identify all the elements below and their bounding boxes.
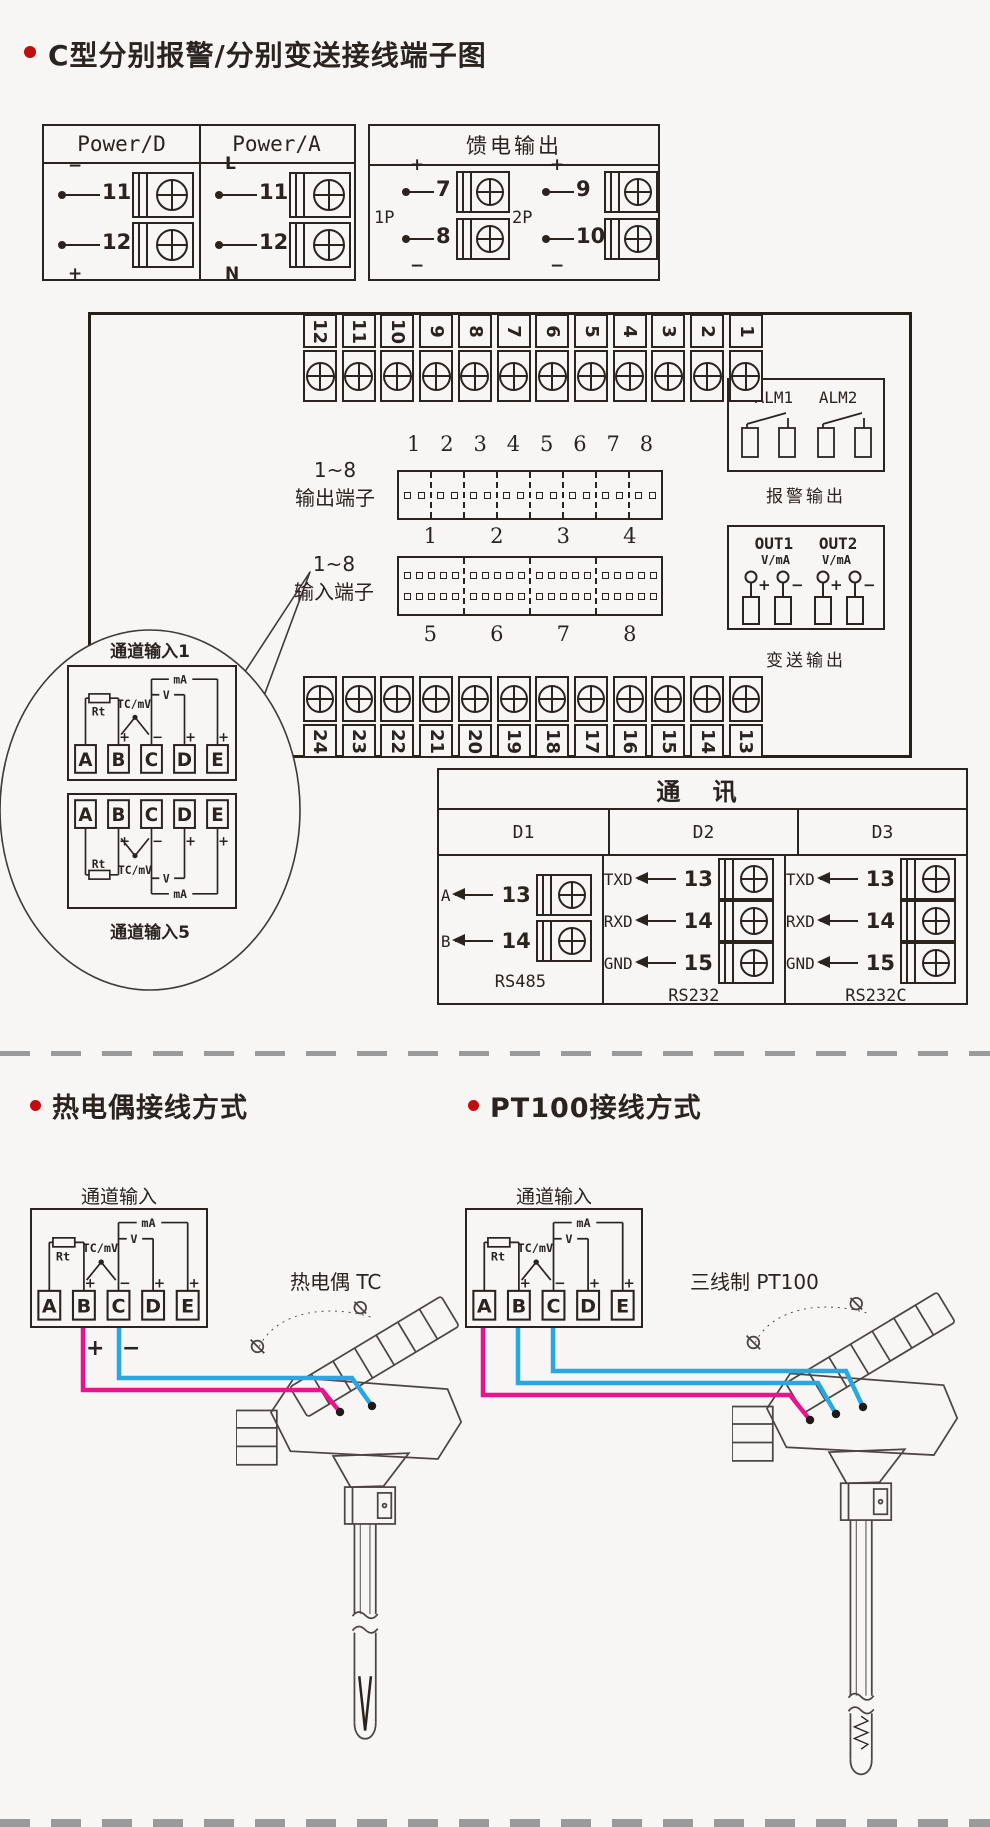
arrow-left-icon bbox=[820, 962, 858, 964]
bullet-icon bbox=[24, 46, 36, 58]
tc-channel-box bbox=[30, 1208, 208, 1328]
power-terminal: − 11 bbox=[58, 172, 194, 218]
pt100-label: 三线制 PT100 bbox=[690, 1266, 819, 1295]
bottom-terminal-strip: 24 23 22 21 20 19 18 17 16 15 14 13 bbox=[303, 676, 763, 758]
analog-output-terminals: + − bbox=[741, 569, 805, 627]
group-1p-label: 1P bbox=[374, 208, 394, 228]
transmit-output-box: OUT1 OUT2 V/mA V/mA + − + − bbox=[727, 525, 885, 630]
input-terminal-label: 1~8输入端子 bbox=[278, 552, 390, 605]
pt100-section-title: PT100接线方式 bbox=[490, 1086, 702, 1125]
tc-positive-wire bbox=[83, 1328, 340, 1412]
output-connector bbox=[397, 470, 663, 520]
arrow-left-icon bbox=[638, 962, 676, 964]
group-2p-label: 2P bbox=[512, 208, 532, 228]
top-terminal-strip: 12 11 10 9 8 7 6 5 4 3 2 1 bbox=[303, 314, 763, 402]
power-terminal: N 12 bbox=[215, 222, 351, 268]
arrow-left-icon bbox=[455, 894, 493, 896]
alm2-label: ALM2 bbox=[819, 388, 858, 407]
channel-input-1-label: 通道输入1 bbox=[70, 637, 230, 662]
wiring-diagram-page: A B C D E Rt TC/mV V mA + − + + bbox=[0, 0, 990, 1827]
rs232-column: TXD13 RXD14 GND15 RS232 bbox=[604, 856, 786, 1004]
transmit-output-caption: 变送输出 bbox=[727, 646, 885, 671]
rs485-caption: RS485 bbox=[439, 972, 602, 992]
col-d2: D2 bbox=[610, 810, 799, 854]
output-terminal-label: 1~8输出端子 bbox=[280, 458, 390, 511]
output-numbers: 1234 5678 bbox=[397, 432, 663, 456]
feed-terminal: + 9 bbox=[542, 171, 658, 213]
thermocouple-section-title: 热电偶接线方式 bbox=[52, 1086, 248, 1125]
input-numbers-bottom: 5678 bbox=[397, 622, 663, 646]
out1-label: OUT1 bbox=[755, 534, 794, 553]
svg-text:+: + bbox=[758, 576, 771, 594]
arrow-left-icon bbox=[820, 878, 858, 880]
out2-label: OUT2 bbox=[819, 534, 858, 553]
channel-input-5-box bbox=[67, 793, 237, 909]
tc-negative-wire bbox=[119, 1328, 372, 1406]
pt100-channel-box bbox=[465, 1208, 643, 1328]
svg-text:+: + bbox=[830, 576, 843, 594]
feed-output-box: 馈电输出 1P 2P + 7 − 8 + 9 − 10 bbox=[368, 124, 660, 281]
channel-input-label: 通道输入 bbox=[465, 1182, 643, 1209]
col-d3: D3 bbox=[799, 810, 966, 854]
arrow-left-icon bbox=[638, 920, 676, 922]
rs232c-caption: RS232C bbox=[786, 986, 966, 1006]
bullet-icon bbox=[30, 1100, 41, 1111]
bottom-divider bbox=[0, 1819, 990, 1827]
input-connector bbox=[397, 556, 663, 616]
screw-icon bbox=[306, 362, 335, 391]
power-terminal: + 12 bbox=[58, 222, 194, 268]
comm-header: 通 讯 bbox=[439, 770, 966, 810]
input-numbers-top: 1234 bbox=[397, 524, 663, 548]
rs232c-column: TXD13 RXD14 GND15 RS232C bbox=[786, 856, 966, 1004]
bullet-icon bbox=[468, 1100, 479, 1111]
channel-input-1-box bbox=[67, 665, 237, 781]
arrow-left-icon bbox=[638, 878, 676, 880]
feed-terminal: + 7 bbox=[402, 171, 510, 213]
relay-contact-icon bbox=[816, 410, 876, 462]
power-a-header: Power/A bbox=[199, 126, 354, 162]
comm-table: 通 讯 D1 D2 D3 A13 B14 RS485 TXD13 RXD14 G… bbox=[437, 768, 968, 1005]
col-d1: D1 bbox=[439, 810, 610, 854]
rs485-column: A13 B14 RS485 bbox=[439, 856, 604, 1004]
page-title: C型分别报警/分别变送接线端子图 bbox=[48, 34, 487, 74]
svg-text:−: − bbox=[863, 576, 876, 594]
alarm-output-caption: 报警输出 bbox=[727, 482, 885, 507]
analog-output-terminals: + − bbox=[813, 569, 877, 627]
v-ma-label: V/mA bbox=[822, 553, 851, 567]
arrow-left-icon bbox=[455, 940, 493, 942]
v-ma-label: V/mA bbox=[761, 553, 790, 567]
thermocouple-label: 热电偶 TC bbox=[290, 1266, 381, 1295]
channel-input-5-label: 通道输入5 bbox=[70, 918, 230, 943]
sensor-wires bbox=[0, 1320, 990, 1435]
power-terminal: L 11 bbox=[215, 172, 351, 218]
section-divider bbox=[0, 1051, 990, 1056]
svg-text:−: − bbox=[791, 576, 804, 594]
power-box: Power/D Power/A − 11 + 12 L 11 N 12 bbox=[42, 124, 356, 281]
arrow-left-icon bbox=[820, 920, 858, 922]
pt100-wire-a bbox=[483, 1328, 810, 1420]
relay-contact-icon bbox=[740, 410, 800, 462]
feed-terminal: − 8 bbox=[402, 218, 510, 260]
rs232-caption: RS232 bbox=[604, 986, 784, 1006]
channel-input-label: 通道输入 bbox=[30, 1182, 208, 1209]
feed-terminal: − 10 bbox=[542, 218, 658, 260]
